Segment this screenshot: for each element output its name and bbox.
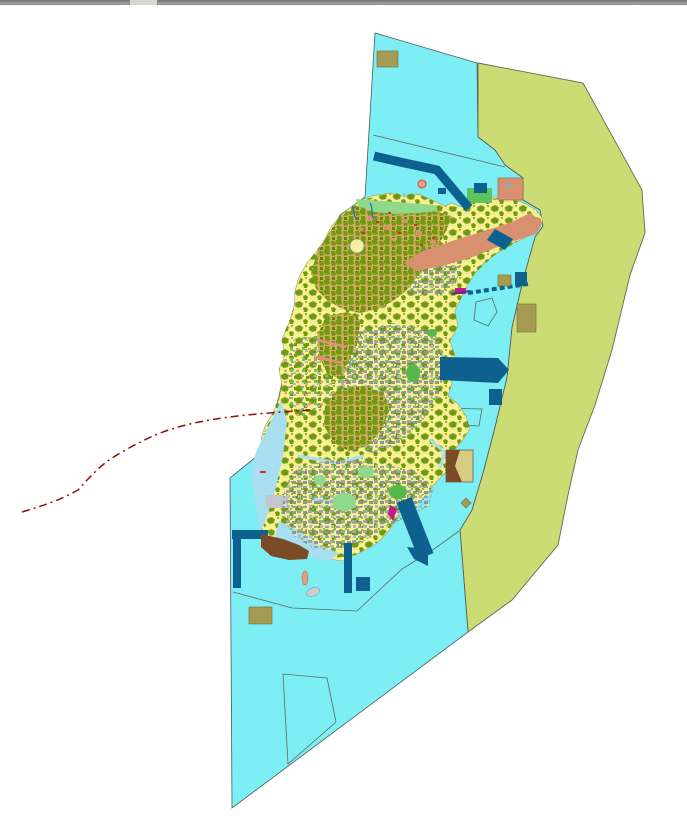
islet-salmon <box>302 571 308 585</box>
round-feature <box>350 239 364 253</box>
buoy-mark <box>418 180 426 188</box>
app-window <box>0 0 687 821</box>
harbour-mark <box>505 183 512 187</box>
map-canvas[interactable] <box>0 5 687 821</box>
map-viewport <box>0 5 687 821</box>
